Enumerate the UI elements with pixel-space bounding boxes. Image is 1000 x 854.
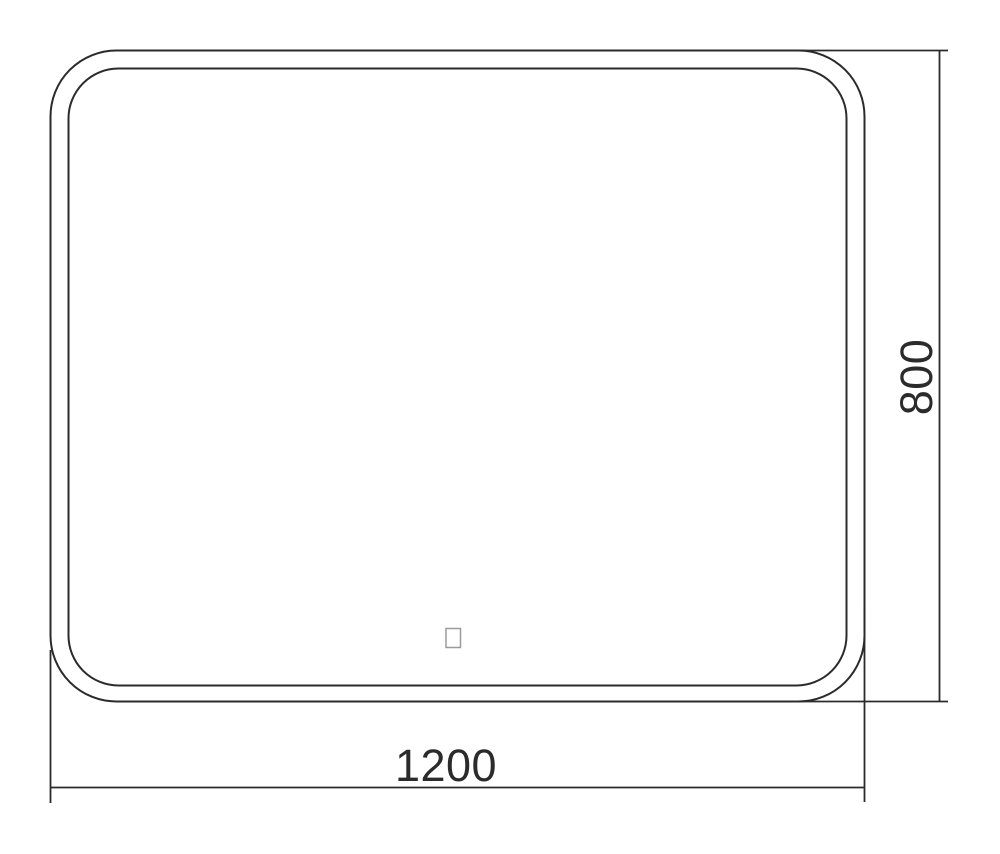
width-dimension-label: 1200: [395, 740, 497, 791]
height-dimension-label: 800: [891, 339, 942, 416]
drawing-canvas: 1200 800: [0, 0, 1000, 854]
mirror-inner-frame: [69, 69, 847, 686]
mirror-frame: [51, 51, 865, 702]
dimension-lines: [51, 51, 949, 804]
touch-sensor-icon: [446, 629, 461, 648]
mirror-technical-drawing: 1200 800: [0, 0, 1000, 854]
mirror-outer-frame: [51, 51, 865, 702]
